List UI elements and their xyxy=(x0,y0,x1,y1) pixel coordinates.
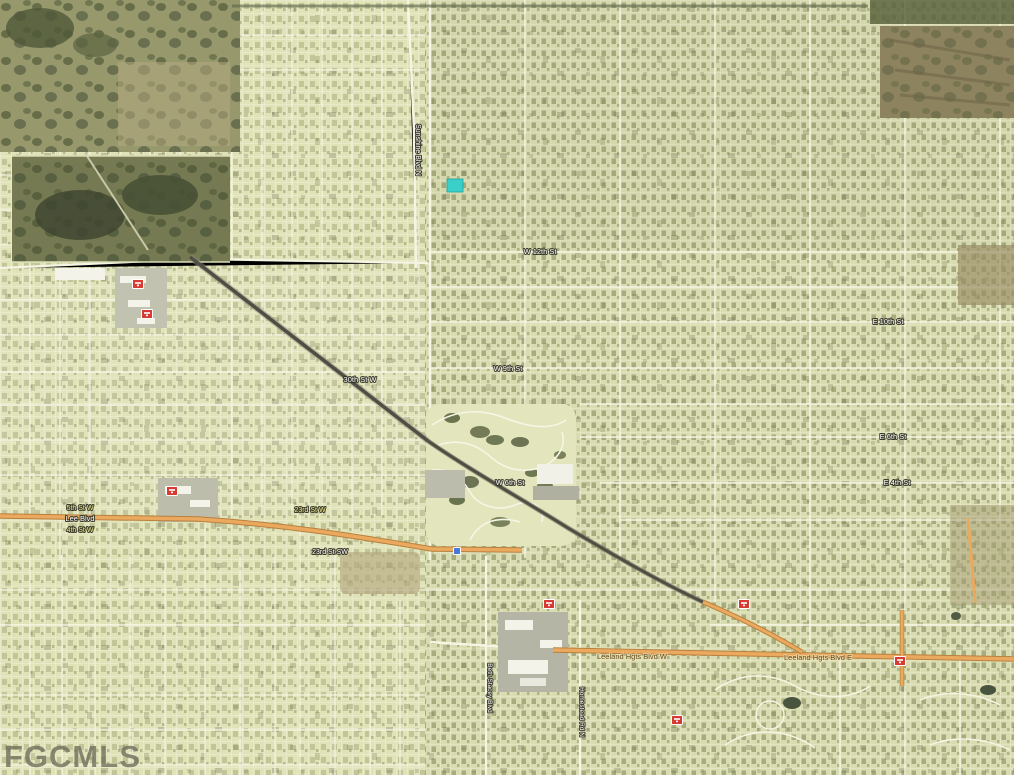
street-label: W 6th St xyxy=(496,478,526,487)
satellite-map-viewport[interactable]: Sunshine Blvd NW 12th StW 9th StW 6th St… xyxy=(0,0,1014,775)
street-label: Lee Blvd xyxy=(65,514,94,523)
street-label: Sunshine Blvd N xyxy=(414,124,421,176)
street-label: 4th St W xyxy=(67,527,94,534)
street-label: Leeland Hgts Blvd E xyxy=(784,653,852,662)
street-label: 5th St W xyxy=(67,505,94,512)
street-label: W 12th St xyxy=(524,247,558,256)
street-label: W 9th St xyxy=(494,364,524,373)
satellite-map-canvas: Sunshine Blvd NW 12th StW 9th StW 6th St… xyxy=(0,0,1014,775)
mls-watermark: FGCMLS xyxy=(4,739,141,774)
poi-icon-red[interactable] xyxy=(133,280,144,289)
street-label: E 6th St xyxy=(880,432,908,441)
street-label: Leeland Hgts Blvd W xyxy=(597,652,668,661)
street-label: 30th St W xyxy=(344,375,378,384)
subject-property-marker[interactable] xyxy=(447,179,463,192)
poi-icon-red[interactable] xyxy=(739,600,750,609)
street-label: Beth Stacey Blvd xyxy=(486,663,493,713)
poi-icon-red[interactable] xyxy=(895,657,906,666)
street-label: 23rd St W xyxy=(294,507,326,514)
poi-icon-blue[interactable] xyxy=(454,548,461,555)
street-label: E 4th St xyxy=(884,478,912,487)
poi-icon-red[interactable] xyxy=(672,716,683,725)
street-label: E 10th St xyxy=(873,317,905,326)
poi-icon-red[interactable] xyxy=(142,310,153,319)
poi-icon-red[interactable] xyxy=(167,487,178,496)
street-label: 23rd St SW xyxy=(312,549,348,556)
poi-icon-red[interactable] xyxy=(544,600,555,609)
street-label: Homestead Rd N xyxy=(578,687,585,737)
